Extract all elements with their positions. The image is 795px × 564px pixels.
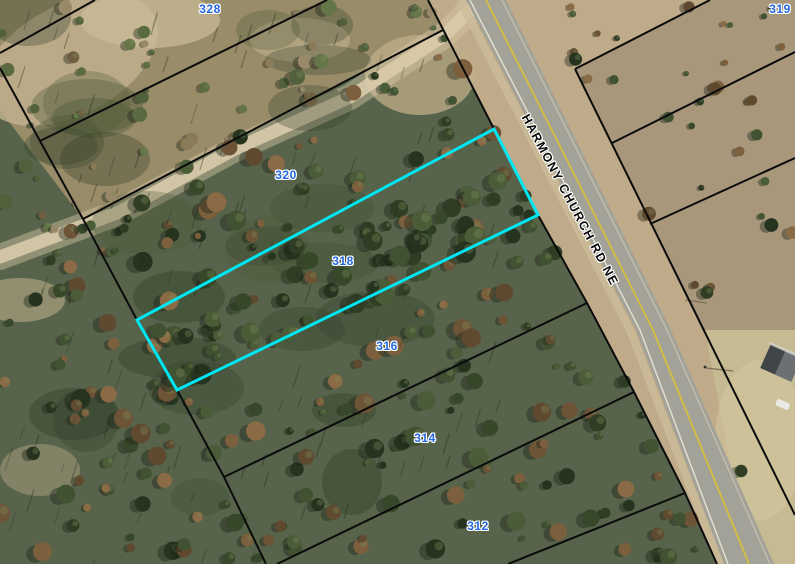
aerial-basemap xyxy=(0,0,795,564)
map-viewport[interactable]: 328319320318316314312 HARMONY CHURCH RD … xyxy=(0,0,795,564)
